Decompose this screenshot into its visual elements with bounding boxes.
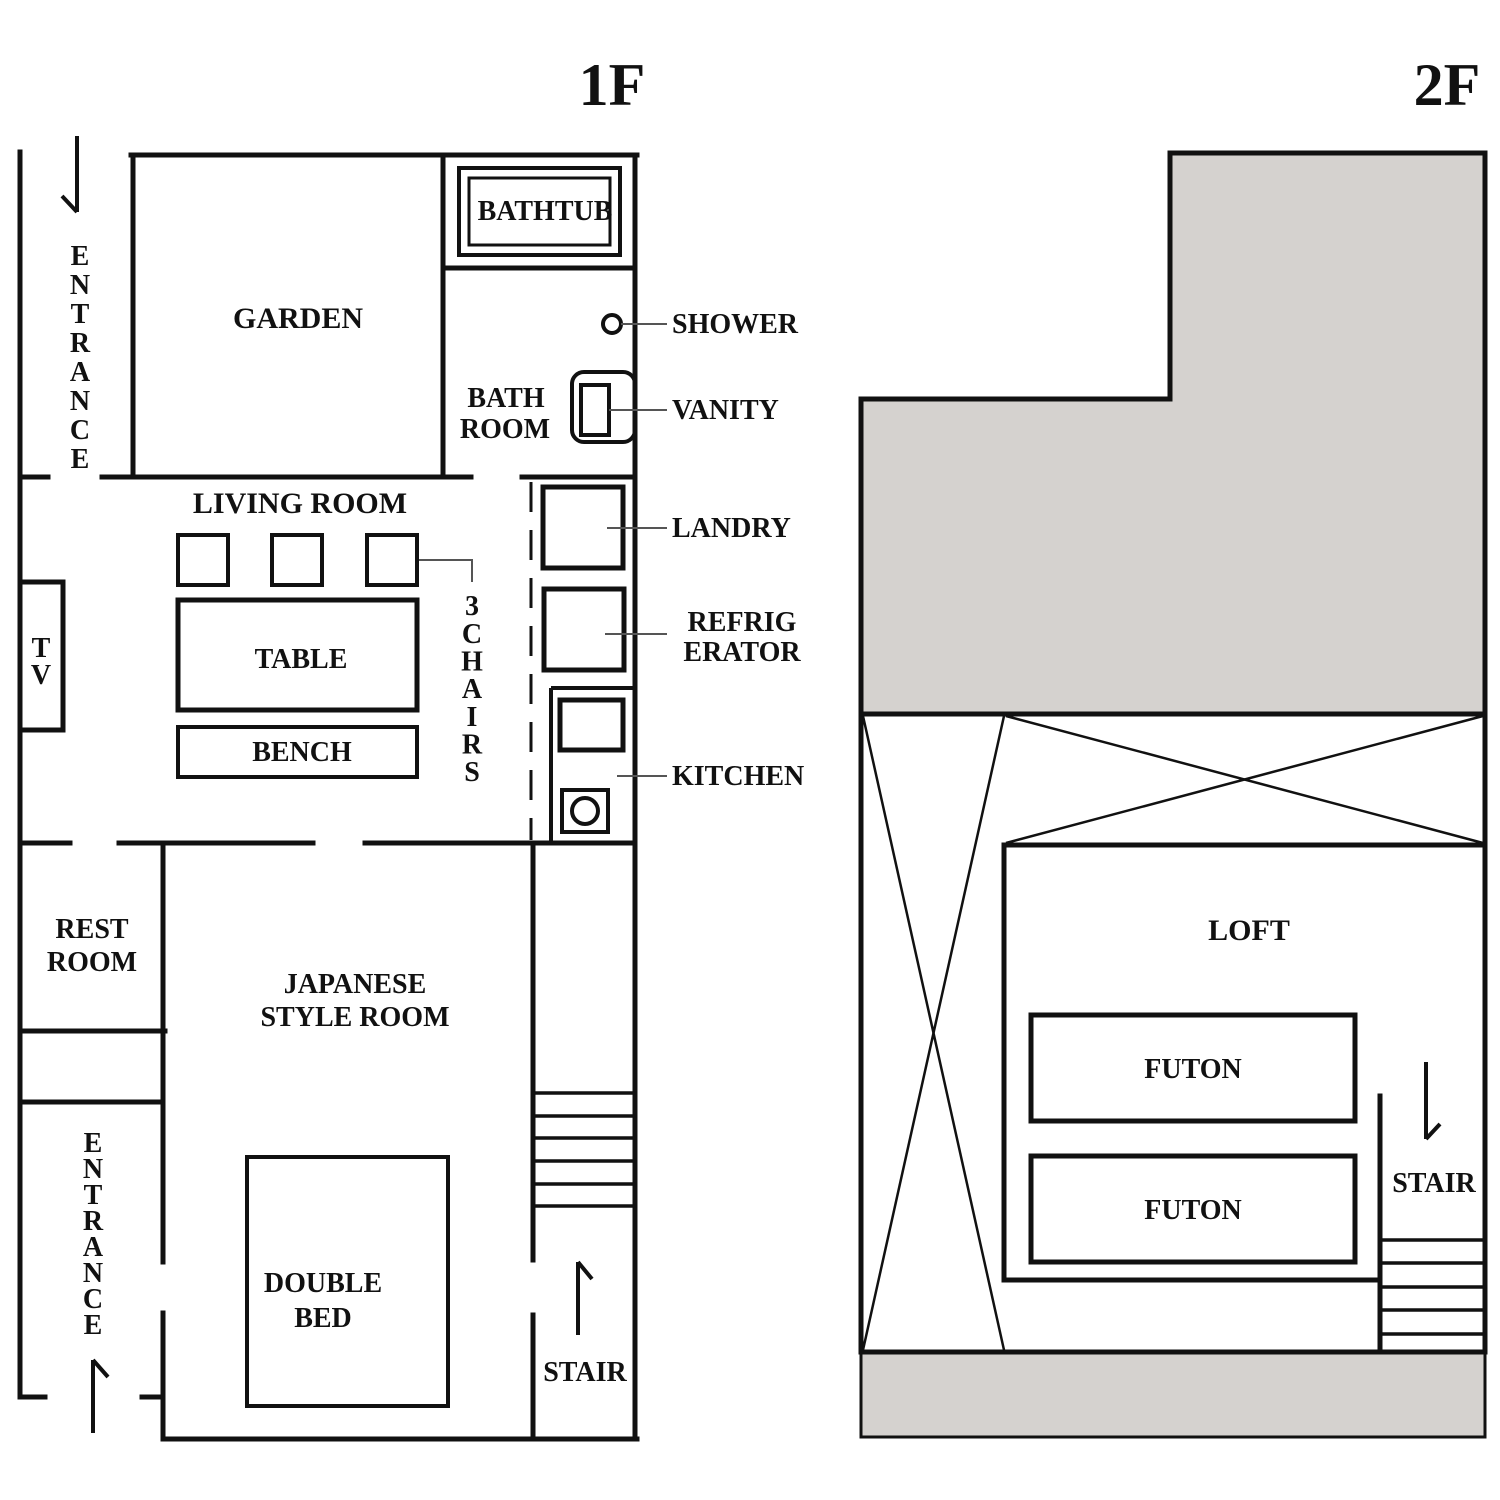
stair-label-1f: STAIR xyxy=(543,1357,627,1388)
entrance-top-label: ENTRANCE xyxy=(70,241,91,475)
floor2-title: 2F xyxy=(1414,52,1481,118)
japanese-room-label-line2: STYLE ROOM xyxy=(260,1002,449,1033)
chairs-word-label: CHAIRS xyxy=(461,619,483,788)
bathroom-label-line1: BATH xyxy=(467,383,544,414)
double-bed-label-line2: BED xyxy=(294,1303,352,1334)
table-label: TABLE xyxy=(255,644,348,675)
floor1-walls xyxy=(20,152,637,1439)
restroom-label-line1: REST xyxy=(55,914,128,945)
tv-label: TV xyxy=(31,633,51,691)
floor2-plan: LOFT FUTON FUTON STAIR xyxy=(861,153,1485,1437)
floor-plan-drawing: 1F 2F xyxy=(0,0,1500,1500)
kitchen-label: KITCHEN xyxy=(672,761,804,792)
bench-label: BENCH xyxy=(252,737,352,768)
floor1-plan: GARDEN LIVING ROOM BATHTUB BATH ROOM RES… xyxy=(20,136,804,1439)
refrigerator-label-line1: REFRIG xyxy=(688,607,797,638)
living-room-label: LIVING ROOM xyxy=(193,487,407,520)
chair-2 xyxy=(272,535,322,585)
vanity-label: VANITY xyxy=(672,395,779,426)
laundry-label: LANDRY xyxy=(672,513,791,544)
futon-upper-label: FUTON xyxy=(1144,1054,1242,1085)
double-bed-label-line1: DOUBLE xyxy=(264,1268,382,1299)
bathtub-label: BATHTUB xyxy=(478,196,613,227)
void-braces xyxy=(863,716,1483,1350)
chair-1 xyxy=(178,535,228,585)
chair-3 xyxy=(367,535,417,585)
stair-down-arrow-icon xyxy=(1426,1062,1440,1139)
shower-head-icon xyxy=(603,315,621,333)
stair-label-2f: STAIR xyxy=(1392,1168,1476,1199)
refrigerator-box xyxy=(544,589,624,670)
stair-treads-1f xyxy=(533,1093,635,1206)
entrance-top-arrow-icon xyxy=(62,136,77,212)
kitchen-sink xyxy=(560,700,623,750)
japanese-room-label-line1: JAPANESE xyxy=(284,969,427,1000)
floor1-title: 1F xyxy=(579,52,646,118)
entrance-bottom-label: ENTRANCE xyxy=(83,1128,104,1341)
bottom-gray-strip xyxy=(861,1352,1485,1437)
stair-treads-2f xyxy=(1380,1240,1485,1334)
shower-label: SHOWER xyxy=(672,309,799,340)
entrance-bottom-arrow-icon xyxy=(93,1360,108,1433)
restroom-label-line2: ROOM xyxy=(47,947,137,978)
chairs-leader xyxy=(419,560,472,582)
stove-burner-icon xyxy=(572,798,598,824)
floor-plan-page: 1F 2F xyxy=(0,0,1500,1500)
floor1-furniture xyxy=(20,168,635,1406)
refrigerator-label-line2: ERATOR xyxy=(683,637,801,668)
futon-lower-label: FUTON xyxy=(1144,1195,1242,1226)
vanity-basin xyxy=(581,385,609,435)
garden-label: GARDEN xyxy=(233,302,363,335)
stair-up-arrow-icon xyxy=(578,1262,592,1335)
bathroom-label-line2: ROOM xyxy=(460,414,550,445)
loft-label: LOFT xyxy=(1208,914,1290,947)
roof-gray-area xyxy=(861,153,1485,714)
chairs-count-label: 3 xyxy=(465,591,479,622)
